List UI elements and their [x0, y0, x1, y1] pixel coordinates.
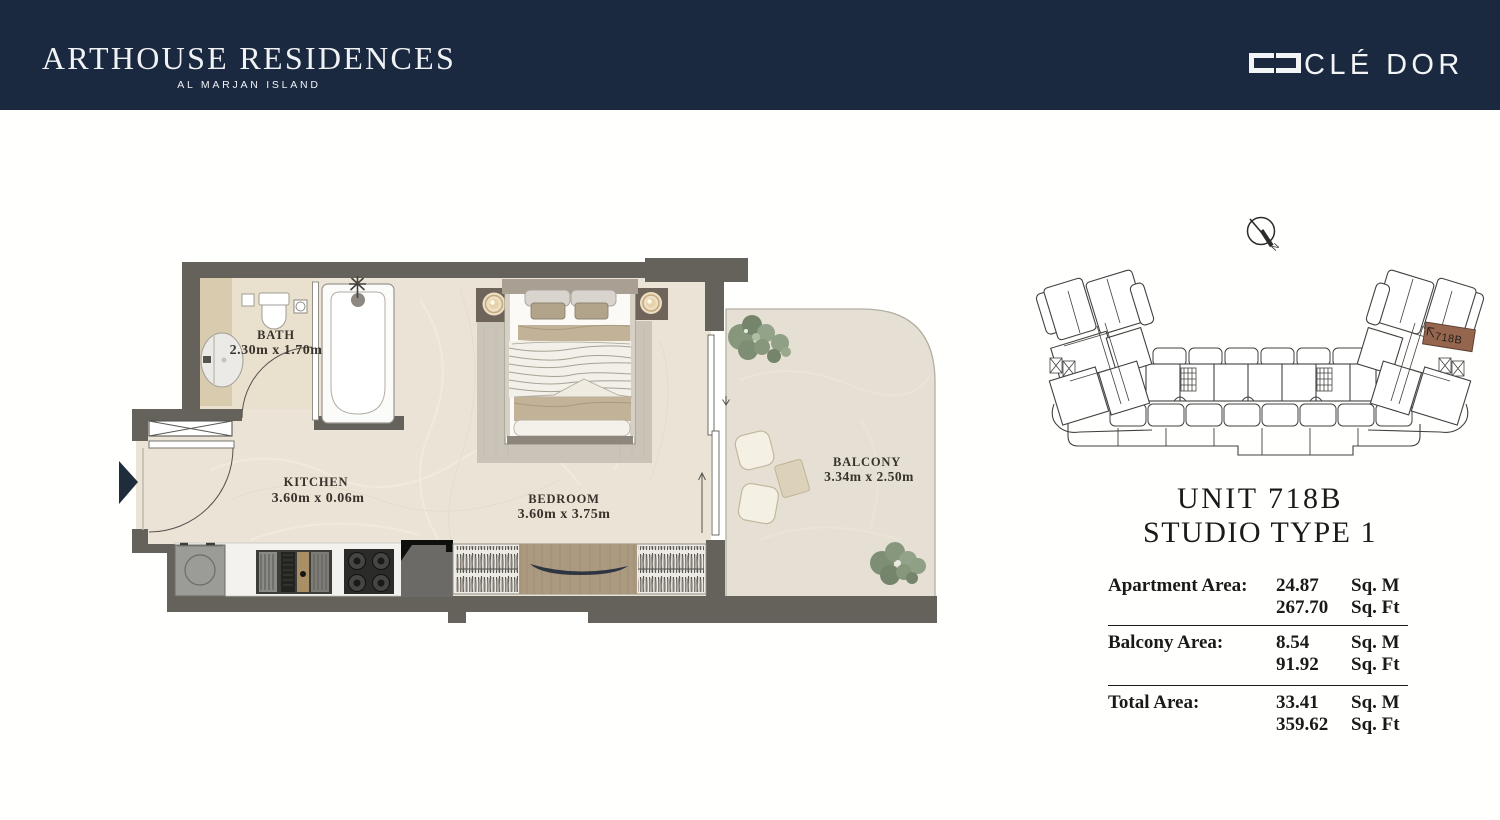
svg-text:BALCONY: BALCONY [833, 455, 901, 469]
svg-text:3.34m x 2.50m: 3.34m x 2.50m [824, 469, 914, 484]
svg-text:N: N [1269, 241, 1281, 253]
svg-text:3.60m x 3.75m: 3.60m x 3.75m [518, 507, 611, 522]
svg-text:BATH: BATH [257, 328, 295, 342]
svg-text:3.60m x 0.06m: 3.60m x 0.06m [272, 491, 365, 506]
svg-text:KITCHEN: KITCHEN [284, 475, 349, 489]
svg-text:2.30m x 1.70m: 2.30m x 1.70m [230, 343, 323, 358]
svg-text:BEDROOM: BEDROOM [528, 492, 600, 506]
